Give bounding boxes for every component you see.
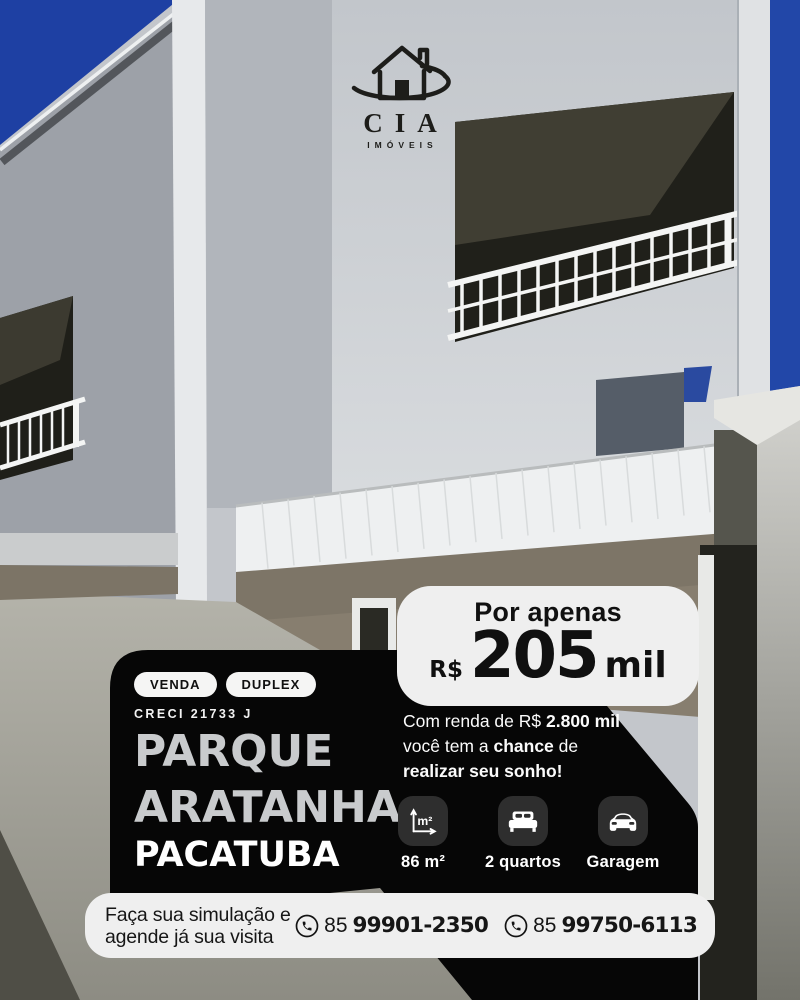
price-amount: 205: [470, 626, 598, 687]
phone-2-ddd: 85: [533, 914, 556, 938]
house-swoosh-icon: [348, 38, 452, 110]
feature-area-label: 86 m²: [380, 853, 466, 872]
phone-list: 85 99901-2350 85 99750-6113: [295, 913, 697, 938]
feature-bedrooms: 2 quartos: [477, 796, 569, 872]
phone-2: 85 99750-6113: [504, 913, 697, 938]
real-estate-flyer: CIA IMÓVEIS Por apenas R$ 205 mil VENDA …: [0, 0, 800, 1000]
cta-text: Faça sua simulação e agende já sua visit…: [105, 904, 291, 948]
badges-row: VENDA DUPLEX: [134, 672, 410, 697]
bed-icon: [498, 796, 548, 846]
phone-icon: [504, 914, 528, 938]
pitch-line3: realizar seu sonho!: [403, 759, 653, 784]
cta-line1: Faça sua simulação e: [105, 904, 291, 926]
svg-text:m²: m²: [417, 814, 432, 828]
contact-bar: Faça sua simulação e agende já sua visit…: [85, 893, 715, 958]
phone-1-ddd: 85: [324, 914, 347, 938]
phone-1-number: 99901-2350: [353, 913, 489, 938]
phone-icon: [295, 914, 319, 938]
listing-panel: VENDA DUPLEX CRECI 21733 J PARQUE ARATAN…: [134, 672, 410, 877]
feature-garage-label: Garagem: [577, 853, 669, 872]
creci-number: CRECI 21733 J: [134, 707, 410, 721]
badge-duplex: DUPLEX: [226, 672, 317, 697]
badge-venda: VENDA: [134, 672, 217, 697]
price-value: R$ 205 mil: [397, 626, 699, 687]
pitch-line2: você tem a chance de: [403, 734, 653, 759]
phone-1: 85 99901-2350: [295, 913, 488, 938]
feature-bedrooms-label: 2 quartos: [477, 853, 569, 872]
car-icon: [598, 796, 648, 846]
phone-2-number: 99750-6113: [561, 913, 697, 938]
cta-line2: agende já sua visita: [105, 926, 291, 948]
price-unit: mil: [605, 645, 667, 686]
brand-name: CIA: [320, 110, 480, 137]
listing-location: PACATUBA: [134, 833, 410, 877]
pitch-text: Com renda de R$ 2.800 mil você tem a cha…: [403, 709, 653, 784]
feature-garage: Garagem: [577, 796, 669, 872]
listing-title-line2: ARATANHA: [134, 783, 410, 833]
feature-area: m² 86 m²: [380, 796, 466, 872]
listing-title-line1: PARQUE: [134, 727, 410, 777]
area-icon: m²: [398, 796, 448, 846]
brand-logo: CIA IMÓVEIS: [320, 38, 480, 150]
brand-subtitle: IMÓVEIS: [320, 140, 480, 150]
pitch-line1: Com renda de R$ 2.800 mil: [403, 709, 653, 734]
price-currency: R$: [429, 657, 463, 683]
price-card: Por apenas R$ 205 mil: [397, 586, 699, 706]
